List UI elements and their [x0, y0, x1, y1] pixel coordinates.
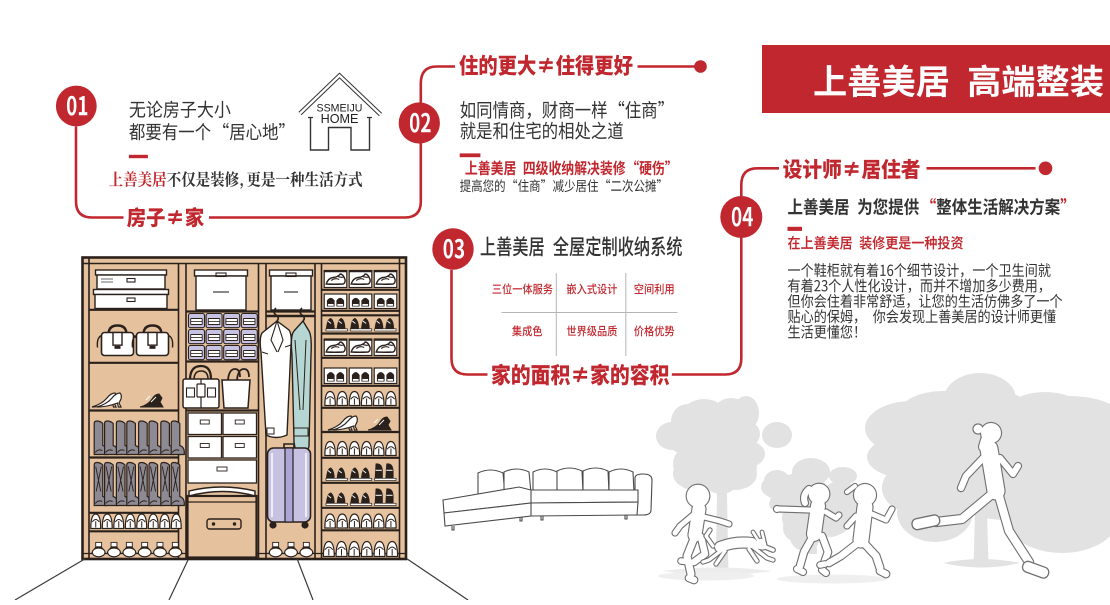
svg-text:HOME: HOME	[321, 112, 359, 126]
